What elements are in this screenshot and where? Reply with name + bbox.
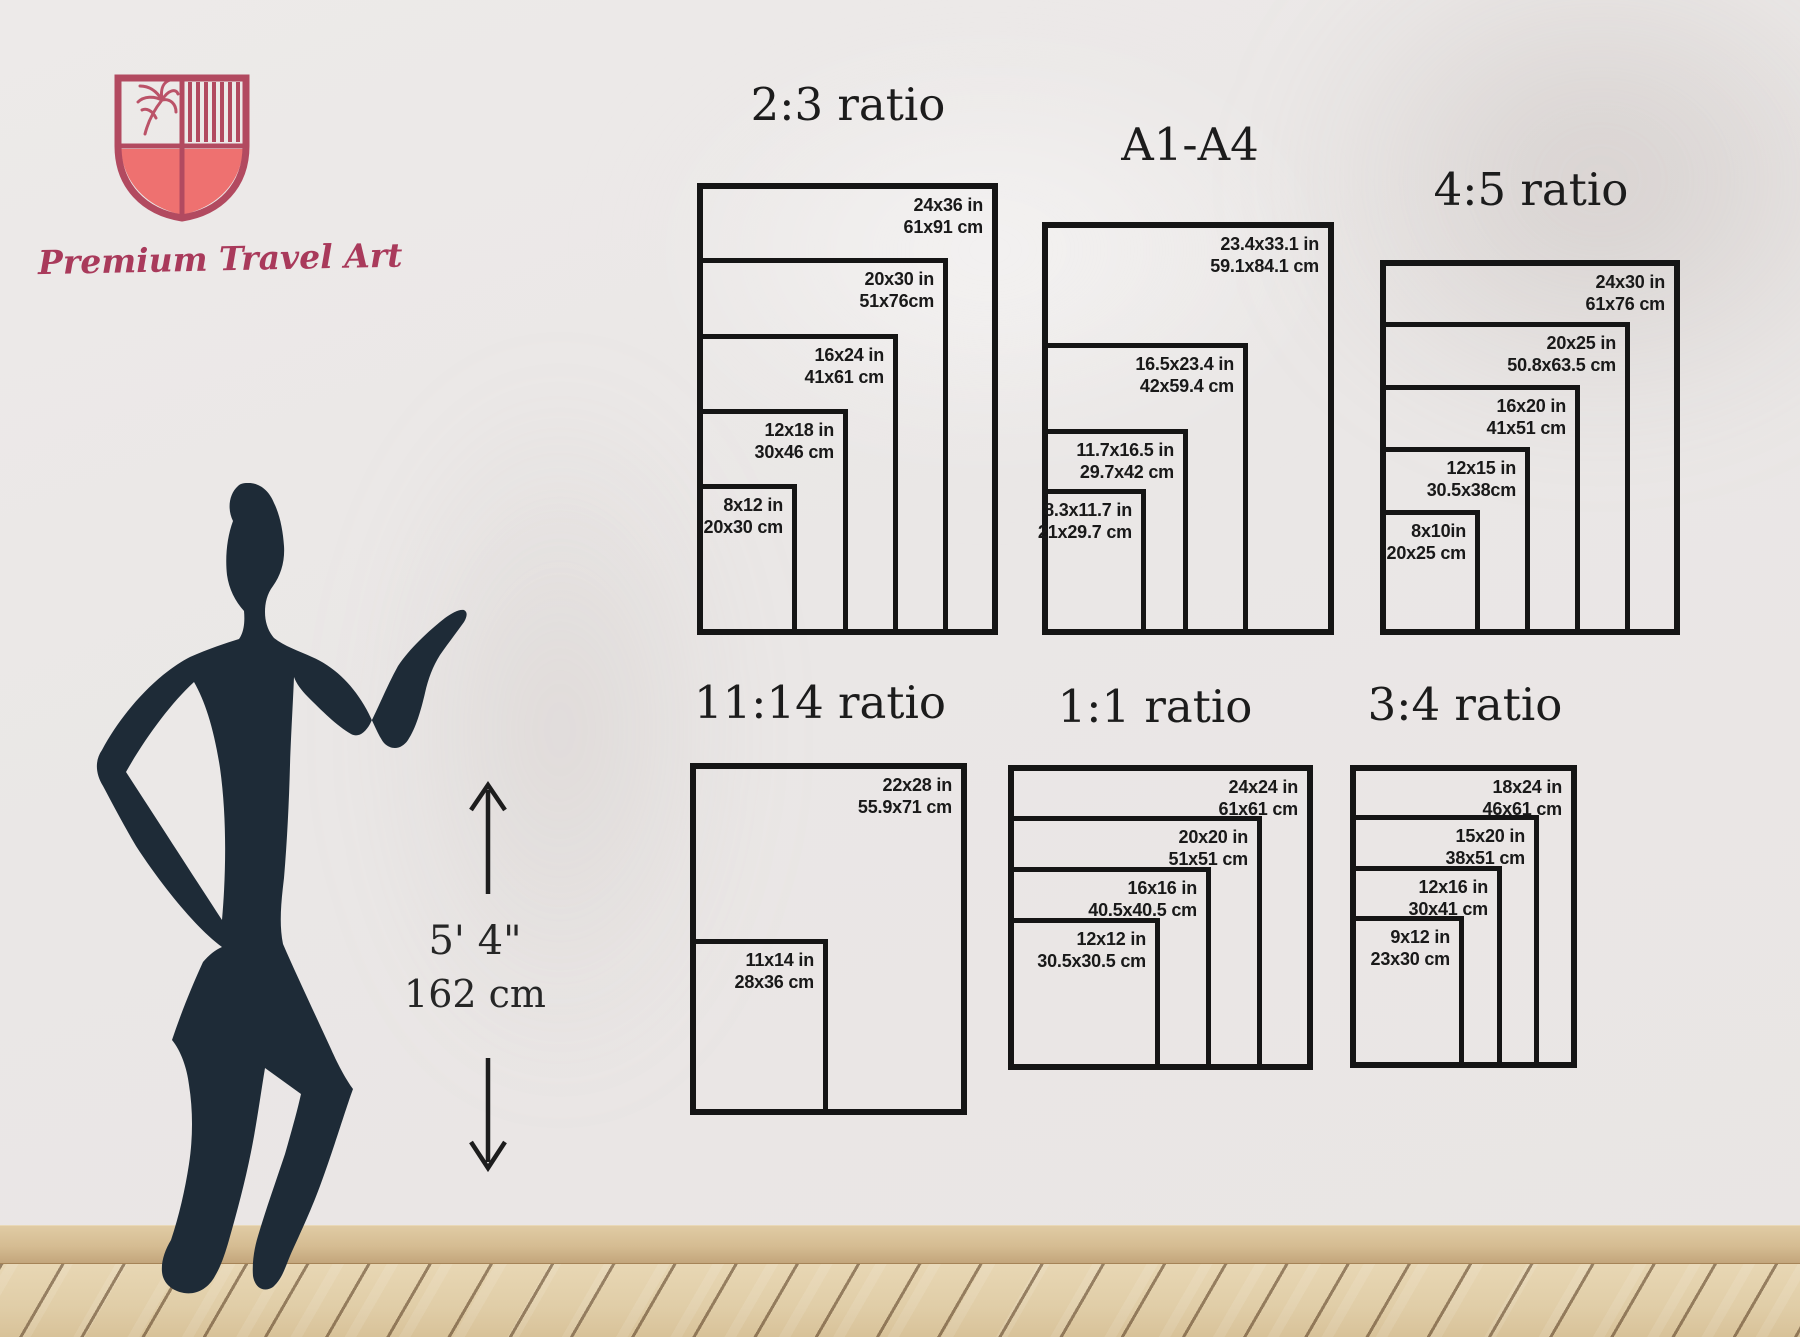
size-label-cm: 50.8x63.5 cm: [1507, 355, 1616, 377]
size-label-cm: 42x59.4 cm: [1135, 376, 1234, 398]
size-label-cm: 30.5x38cm: [1427, 480, 1516, 502]
size-label-cm: 61x91 cm: [904, 217, 983, 239]
size-label-cm: 61x76 cm: [1586, 294, 1665, 316]
size-label-inches: 15x20 in: [1446, 826, 1525, 848]
size-label-inches: 12x12 in: [1037, 929, 1146, 951]
size-label-inches: 16x20 in: [1487, 396, 1566, 418]
size-label-inches: 24x24 in: [1219, 777, 1298, 799]
size-label-inches: 16x24 in: [805, 345, 884, 367]
size-rect-a1-a4-8.3x11.7-in: 8.3x11.7 in21x29.7 cm: [1042, 489, 1146, 635]
size-label-cm: 20x25 cm: [1387, 543, 1466, 565]
size-label-inches: 8x10in: [1387, 521, 1466, 543]
size-label-cm: 28x36 cm: [735, 972, 814, 994]
chart-title-ratio-2-3: 2:3 ratio: [751, 78, 946, 131]
size-rect-ratio-3-4-9x12-in: 9x12 in23x30 cm: [1350, 916, 1464, 1068]
size-label-inches: 24x30 in: [1586, 272, 1665, 294]
size-label-inches: 16x16 in: [1088, 878, 1197, 900]
size-label-cm: 41x51 cm: [1487, 418, 1566, 440]
size-label: 12x12 in30.5x30.5 cm: [1037, 929, 1146, 973]
size-label-inches: 12x16 in: [1409, 877, 1488, 899]
size-label-inches: 22x28 in: [858, 775, 952, 797]
height-feet-label: 5' 4": [375, 918, 575, 964]
size-label: 16x24 in41x61 cm: [805, 345, 884, 389]
size-label-inches: 20x25 in: [1507, 333, 1616, 355]
size-label: 23.4x33.1 in59.1x84.1 cm: [1210, 234, 1319, 278]
size-label-cm: 23x30 cm: [1371, 949, 1450, 971]
size-label-cm: 21x29.7 cm: [1038, 522, 1132, 544]
size-label: 15x20 in38x51 cm: [1446, 826, 1525, 870]
chart-title-ratio-1-1: 1:1 ratio: [1058, 680, 1253, 733]
size-rect-ratio-1-1-12x12-in: 12x12 in30.5x30.5 cm: [1008, 918, 1160, 1070]
size-label-cm: 51x76cm: [859, 291, 934, 313]
up-arrow-icon: [458, 778, 518, 898]
size-label-inches: 18x24 in: [1483, 777, 1562, 799]
size-label-cm: 30x46 cm: [755, 442, 834, 464]
size-label: 9x12 in23x30 cm: [1371, 927, 1450, 971]
size-label: 20x20 in51x51 cm: [1169, 827, 1248, 871]
size-label-inches: 12x18 in: [755, 420, 834, 442]
chart-title-ratio-3-4: 3:4 ratio: [1368, 678, 1563, 731]
size-label-cm: 59.1x84.1 cm: [1210, 256, 1319, 278]
size-label-cm: 55.9x71 cm: [858, 797, 952, 819]
size-rect-ratio-11-14-11x14-in: 11x14 in28x36 cm: [690, 939, 828, 1115]
down-arrow-icon: [458, 1054, 518, 1176]
size-label-inches: 16.5x23.4 in: [1135, 354, 1234, 376]
size-label: 12x16 in30x41 cm: [1409, 877, 1488, 921]
size-label-cm: 41x61 cm: [805, 367, 884, 389]
size-label: 11.7x16.5 in29.7x42 cm: [1076, 440, 1174, 484]
size-label-inches: 24x36 in: [904, 195, 983, 217]
size-label-inches: 20x20 in: [1169, 827, 1248, 849]
size-label: 16x20 in41x51 cm: [1487, 396, 1566, 440]
size-label: 22x28 in55.9x71 cm: [858, 775, 952, 819]
size-label-cm: 30.5x30.5 cm: [1037, 951, 1146, 973]
size-label-inches: 23.4x33.1 in: [1210, 234, 1319, 256]
size-label: 24x24 in61x61 cm: [1219, 777, 1298, 821]
size-label-cm: 20x30 cm: [704, 517, 783, 539]
size-label-inches: 9x12 in: [1371, 927, 1450, 949]
size-label-inches: 20x30 in: [859, 269, 934, 291]
size-label-inches: 8x12 in: [704, 495, 783, 517]
size-label: 8x10in20x25 cm: [1387, 521, 1466, 565]
chart-title-ratio-4-5: 4:5 ratio: [1434, 163, 1629, 216]
size-label: 20x25 in50.8x63.5 cm: [1507, 333, 1616, 377]
size-label: 8.3x11.7 in21x29.7 cm: [1038, 500, 1132, 544]
size-label: 8x12 in20x30 cm: [704, 495, 783, 539]
size-label: 11x14 in28x36 cm: [735, 950, 814, 994]
size-label-cm: 29.7x42 cm: [1076, 462, 1174, 484]
chart-title-a1-a4: A1-A4: [1121, 118, 1258, 171]
size-label: 24x36 in61x91 cm: [904, 195, 983, 239]
size-label: 16x16 in40.5x40.5 cm: [1088, 878, 1197, 922]
size-label: 12x15 in30.5x38cm: [1427, 458, 1516, 502]
chart-title-ratio-11-14: 11:14 ratio: [694, 676, 946, 729]
size-label-inches: 12x15 in: [1427, 458, 1516, 480]
height-cm-label: 162 cm: [375, 972, 575, 1016]
size-label-inches: 11x14 in: [735, 950, 814, 972]
poster: Premium Travel Art 5' 4" 162 cm 2:3 rati…: [0, 0, 1800, 1337]
size-label: 12x18 in30x46 cm: [755, 420, 834, 464]
size-rect-ratio-2-3-8x12-in: 8x12 in20x30 cm: [697, 484, 797, 635]
size-label: 16.5x23.4 in42x59.4 cm: [1135, 354, 1234, 398]
size-label-inches: 8.3x11.7 in: [1038, 500, 1132, 522]
size-label-inches: 11.7x16.5 in: [1076, 440, 1174, 462]
size-label: 24x30 in61x76 cm: [1586, 272, 1665, 316]
size-label: 20x30 in51x76cm: [859, 269, 934, 313]
size-rect-ratio-4-5-8x10in: 8x10in20x25 cm: [1380, 510, 1480, 635]
